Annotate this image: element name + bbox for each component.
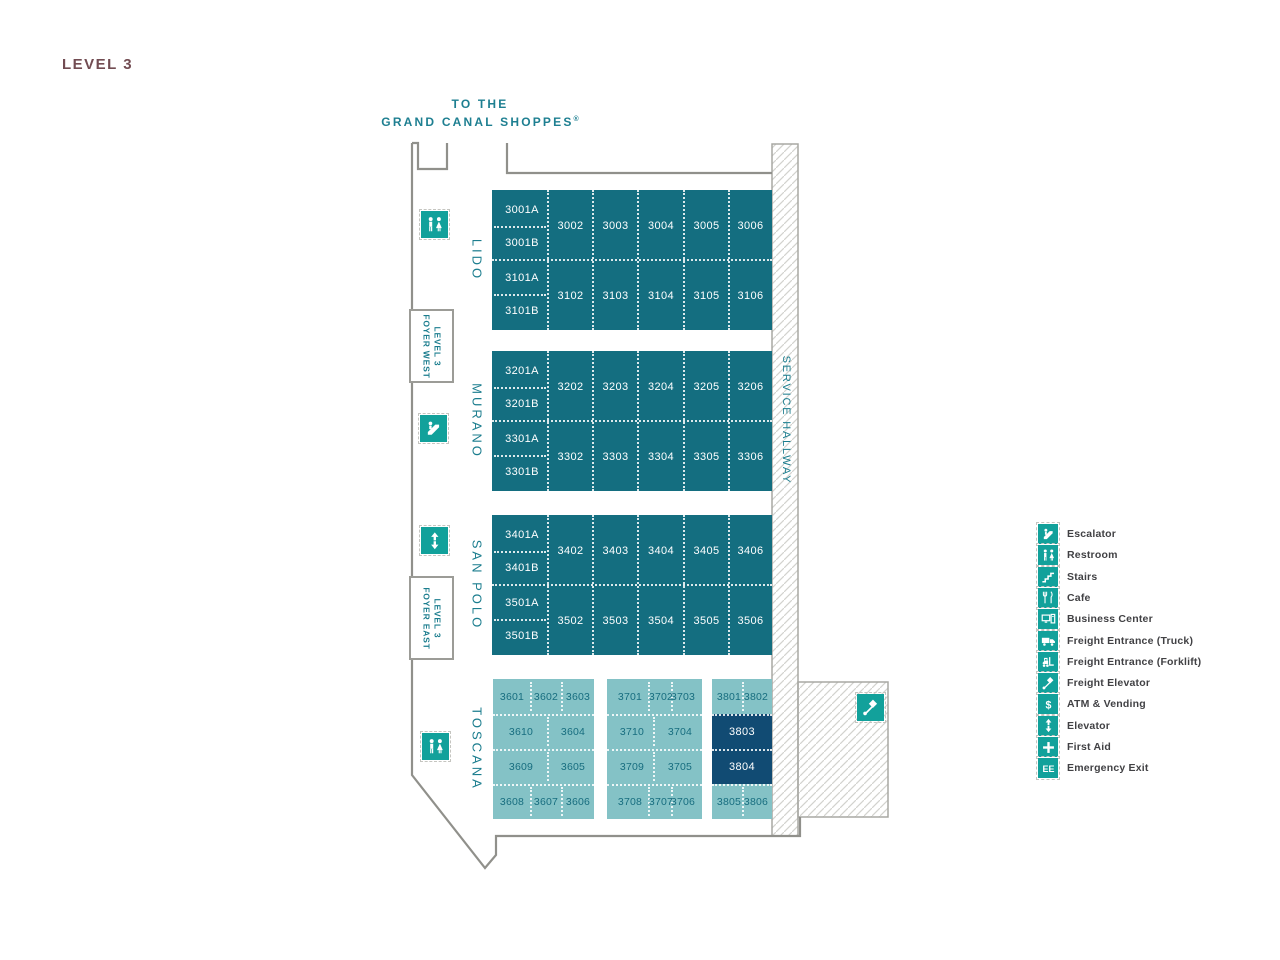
row-divider	[607, 784, 702, 786]
legend-label: Emergency Exit	[1067, 762, 1149, 774]
row-divider	[493, 714, 594, 716]
room-3406: 3406	[737, 545, 763, 557]
legend-label: Escalator	[1067, 528, 1116, 540]
room-3503: 3503	[602, 615, 628, 627]
legend-label: Stairs	[1067, 571, 1097, 583]
legend-label: Restroom	[1067, 549, 1118, 561]
first-aid-icon-glyph	[1040, 739, 1057, 756]
svg-text:EE: EE	[1042, 764, 1054, 774]
room-3305: 3305	[693, 451, 719, 463]
room-3501B: 3501B	[505, 630, 539, 642]
room-3703: 3703	[671, 691, 695, 703]
section-label-san-polo: SAN POLO	[470, 540, 485, 630]
hall-room-divider	[494, 387, 546, 389]
floorplan-level3: LEVEL 3 TO THE GRAND CANAL SHOPPES® SERV…	[0, 0, 1280, 960]
hall-room-divider	[494, 551, 546, 553]
legend-label: Elevator	[1067, 720, 1110, 732]
legend-item-freight-truck: Freight Entrance (Truck)	[1038, 631, 1193, 651]
room-3801: 3801	[717, 691, 741, 703]
room-3607: 3607	[534, 796, 558, 808]
room-3006: 3006	[737, 220, 763, 232]
restroom-icon-glyph	[424, 214, 446, 236]
legend-item-first-aid: First Aid	[1038, 737, 1111, 757]
cell-divider	[561, 787, 563, 816]
emergency-exit-icon: EE	[1038, 758, 1058, 778]
legend-label: Cafe	[1067, 592, 1091, 604]
legend-item-business-center: Business Center	[1038, 609, 1153, 629]
freight-elevator-icon-glyph	[860, 697, 882, 719]
section-label-lido: LIDO	[470, 239, 485, 281]
room-3401A: 3401A	[505, 529, 539, 541]
room-3701: 3701	[618, 691, 642, 703]
row-divider	[607, 749, 702, 751]
cell-divider	[547, 752, 549, 781]
escalator-icon	[420, 415, 447, 442]
room-3402: 3402	[557, 545, 583, 557]
room-3404: 3404	[648, 545, 674, 557]
room-3601: 3601	[500, 691, 524, 703]
room-3105: 3105	[693, 290, 719, 302]
room-3005: 3005	[693, 220, 719, 232]
restroom-icon	[421, 211, 448, 238]
service-hallway-label: SERVICE HALLWAY	[780, 356, 792, 485]
hall-room-divider	[494, 619, 546, 621]
room-3201A: 3201A	[505, 365, 539, 377]
legend-label: Freight Entrance (Forklift)	[1067, 656, 1201, 668]
room-3104: 3104	[648, 290, 674, 302]
room-3706: 3706	[671, 796, 695, 808]
room-3202: 3202	[557, 381, 583, 393]
room-3604: 3604	[561, 726, 585, 738]
room-3103: 3103	[602, 290, 628, 302]
elevator-icon-glyph	[1040, 717, 1057, 734]
section-block-san-polo: 3401A3401B3501A3501B34023403340434053406…	[492, 515, 772, 655]
legend-item-cafe: Cafe	[1038, 588, 1091, 608]
room-3301A: 3301A	[505, 433, 539, 445]
room-3705: 3705	[668, 761, 692, 773]
room-3702: 3702	[649, 691, 673, 703]
escalator-icon-glyph	[423, 418, 445, 440]
room-3504: 3504	[648, 615, 674, 627]
room-3306: 3306	[737, 451, 763, 463]
freight-truck-icon-glyph	[1040, 632, 1057, 649]
room-3805: 3805	[717, 796, 741, 808]
room-3403: 3403	[602, 545, 628, 557]
legend-label: First Aid	[1067, 741, 1111, 753]
row-divider	[712, 714, 772, 716]
restroom-icon	[1038, 545, 1058, 565]
legend-item-escalator: Escalator	[1038, 524, 1116, 544]
freight-elevator-icon	[857, 694, 884, 721]
foyer-east-label: LEVEL 3 FOYER EAST	[420, 587, 443, 649]
room-3304: 3304	[648, 451, 674, 463]
row-divider	[492, 420, 772, 422]
business-center-icon-glyph	[1040, 611, 1057, 628]
legend-label: ATM & Vending	[1067, 698, 1146, 710]
toscana-block-2: 3701370237033710370437093705370837073706	[607, 679, 702, 819]
room-3204: 3204	[648, 381, 674, 393]
legend-item-stairs: Stairs	[1038, 567, 1097, 587]
cell-divider	[653, 752, 655, 781]
elevator-icon	[421, 527, 448, 554]
escalator-icon-glyph	[1040, 526, 1057, 543]
toscana-block-1: 3601360236033610360436093605360836073606	[493, 679, 594, 819]
room-3206: 3206	[737, 381, 763, 393]
row-divider	[712, 749, 772, 751]
room-3802: 3802	[744, 691, 768, 703]
section-block-lido: 3001A3001B3101A3101B30023003300430053006…	[492, 190, 772, 330]
legend-label: Freight Entrance (Truck)	[1067, 635, 1193, 647]
room-3804: 3804	[729, 761, 755, 773]
freight-forklift-icon-glyph	[1040, 653, 1057, 670]
room-3708: 3708	[618, 796, 642, 808]
room-3709: 3709	[620, 761, 644, 773]
room-3707: 3707	[649, 796, 673, 808]
room-3001A: 3001A	[505, 204, 539, 216]
room-3203: 3203	[602, 381, 628, 393]
room-3101B: 3101B	[505, 305, 539, 317]
elevator-icon-glyph	[424, 530, 446, 552]
room-3710: 3710	[620, 726, 644, 738]
hall-room-divider	[494, 226, 546, 228]
cell-divider	[561, 682, 563, 711]
cafe-icon	[1038, 588, 1058, 608]
foyer-west-box: LEVEL 3 FOYER WEST	[409, 309, 454, 383]
hall-room-divider	[494, 455, 546, 457]
legend-item-elevator: Elevator	[1038, 716, 1110, 736]
room-3302: 3302	[557, 451, 583, 463]
room-3303: 3303	[602, 451, 628, 463]
room-3106: 3106	[737, 290, 763, 302]
hall-room-divider	[494, 294, 546, 296]
restroom-icon	[422, 733, 449, 760]
first-aid-icon	[1038, 737, 1058, 757]
room-3003: 3003	[602, 220, 628, 232]
restroom-icon-glyph	[425, 736, 447, 758]
section-label-toscana: TOSCANA	[470, 707, 485, 791]
legend-item-freight-forklift: Freight Entrance (Forklift)	[1038, 652, 1201, 672]
cell-divider	[530, 787, 532, 816]
freight-truck-icon	[1038, 631, 1058, 651]
atm-icon-glyph: $	[1040, 696, 1057, 713]
row-divider	[492, 259, 772, 261]
legend-label: Freight Elevator	[1067, 677, 1150, 689]
room-3603: 3603	[566, 691, 590, 703]
row-divider	[712, 784, 772, 786]
row-divider	[493, 749, 594, 751]
room-3102: 3102	[557, 290, 583, 302]
atm-icon: $	[1038, 694, 1058, 714]
room-3002: 3002	[557, 220, 583, 232]
foyer-east-box: LEVEL 3 FOYER EAST	[409, 576, 454, 660]
room-3605: 3605	[561, 761, 585, 773]
room-3602: 3602	[534, 691, 558, 703]
elevator-icon	[1038, 716, 1058, 736]
legend-label: Business Center	[1067, 613, 1153, 625]
escalator-icon	[1038, 524, 1058, 544]
freight-forklift-icon	[1038, 652, 1058, 672]
room-3201B: 3201B	[505, 398, 539, 410]
room-3704: 3704	[668, 726, 692, 738]
freight-elevator-icon	[1038, 673, 1058, 693]
cell-divider	[547, 717, 549, 746]
svg-text:$: $	[1045, 699, 1051, 711]
restroom-icon-glyph	[1040, 547, 1057, 564]
room-3608: 3608	[500, 796, 524, 808]
freight-elevator-icon-glyph	[1040, 675, 1057, 692]
service-hallway-hatch	[772, 144, 798, 836]
section-block-murano: 3201A3201B3301A3301B32023203320432053206…	[492, 351, 772, 491]
row-divider	[607, 714, 702, 716]
section-label-murano: MURANO	[470, 383, 485, 459]
room-3101A: 3101A	[505, 272, 539, 284]
room-3001B: 3001B	[505, 237, 539, 249]
room-3609: 3609	[509, 761, 533, 773]
room-3401B: 3401B	[505, 562, 539, 574]
room-3803: 3803	[729, 726, 755, 738]
cell-divider	[530, 682, 532, 711]
stairs-icon-glyph	[1040, 568, 1057, 585]
room-3606: 3606	[566, 796, 590, 808]
room-3502: 3502	[557, 615, 583, 627]
legend-item-restroom: Restroom	[1038, 545, 1118, 565]
emergency-exit-icon-glyph: EE	[1040, 760, 1057, 777]
room-3004: 3004	[648, 220, 674, 232]
room-3301B: 3301B	[505, 466, 539, 478]
room-3806: 3806	[744, 796, 768, 808]
room-3610: 3610	[509, 726, 533, 738]
row-divider	[493, 784, 594, 786]
legend-item-freight-elevator: Freight Elevator	[1038, 673, 1150, 693]
room-3506: 3506	[737, 615, 763, 627]
room-3405: 3405	[693, 545, 719, 557]
legend-item-emergency-exit: EEEmergency Exit	[1038, 758, 1149, 778]
legend-item-atm: $ATM & Vending	[1038, 694, 1146, 714]
stairs-icon	[1038, 567, 1058, 587]
business-center-icon	[1038, 609, 1058, 629]
room-3205: 3205	[693, 381, 719, 393]
toscana-block-3: 380138023803380438053806	[712, 679, 772, 819]
cell-divider	[653, 717, 655, 746]
room-3501A: 3501A	[505, 597, 539, 609]
foyer-west-label: LEVEL 3 FOYER WEST	[420, 314, 443, 378]
room-3505: 3505	[693, 615, 719, 627]
cafe-icon-glyph	[1040, 589, 1057, 606]
row-divider	[492, 584, 772, 586]
